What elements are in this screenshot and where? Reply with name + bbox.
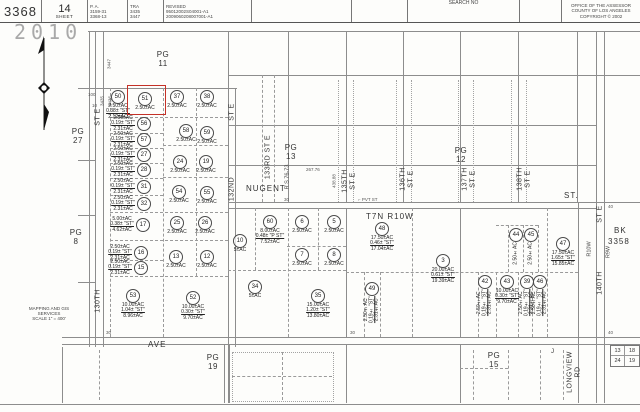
parcel-number-19[interactable]: 19 xyxy=(199,155,213,169)
map-dash-v-20 xyxy=(563,350,564,400)
parcel-number-58[interactable]: 58 xyxy=(179,124,193,138)
corner-13: 13 xyxy=(611,346,625,356)
parcel-60-acreage: 8.00±AC0.48± "P ST"7.52±AC xyxy=(256,229,284,245)
parcel-number-3[interactable]: 3 xyxy=(436,254,450,268)
vertical-label-140th-st-e-top: ST E xyxy=(596,205,604,222)
office-line-3: COPYRIGHT © 2002 xyxy=(580,14,623,19)
map-dash-v-5 xyxy=(288,208,289,337)
map-line-h-13 xyxy=(78,282,95,283)
parcel-43-acreage: 10.00±AC0.30± "ST"9.70±AC xyxy=(495,289,519,305)
parcel-number-34[interactable]: 34 xyxy=(248,280,262,294)
sheet-word: SHEET xyxy=(56,14,74,19)
pg-label-8: PG8 xyxy=(70,228,83,246)
parcel-6-acreage: 2.50±AC xyxy=(292,229,311,234)
parcel-number-43[interactable]: 43 xyxy=(500,275,514,289)
map-line-v-4 xyxy=(235,88,236,347)
label-nugent-st-2: ST. xyxy=(564,191,579,200)
label-pvt-st: ⌐ PVT ST xyxy=(358,197,378,202)
label-tick-100: 100 xyxy=(88,92,96,97)
parcel-number-59[interactable]: 59 xyxy=(200,126,214,140)
parcel-number-24[interactable]: 24 xyxy=(173,155,187,169)
map-dash-v-7 xyxy=(318,208,319,270)
blank-cell-3 xyxy=(520,0,562,22)
map-dot-v-4 xyxy=(458,80,459,202)
parcel-number-16[interactable]: 16 xyxy=(134,246,148,260)
parcel-46-acreage: 2.50±AC0.19± "ST"2.31±AC xyxy=(532,289,548,316)
pg-label-19: PG19 xyxy=(207,353,220,371)
vertical-label-135th-st-e: 135THST E xyxy=(342,169,357,193)
parcel-number-7[interactable]: 7 xyxy=(295,248,309,262)
parcel-number-54[interactable]: 54 xyxy=(172,185,186,199)
map-dash-v-10 xyxy=(380,272,381,337)
vertical-label-138th-st-e: 138THST E xyxy=(517,167,532,191)
map-dash-h-16 xyxy=(460,368,508,369)
map-line-v-0 xyxy=(89,31,90,347)
section-corner-box: 13 18 24 19 xyxy=(610,345,640,367)
pa-line-2: 3368-13 xyxy=(88,14,107,19)
vertical-label-140th-st-e-name: 140TH xyxy=(596,271,604,295)
parcel-number-5[interactable]: 5 xyxy=(327,215,341,229)
pg-label-27: PG27 xyxy=(72,127,85,145)
label-tick-30-rs: 30 xyxy=(284,197,289,202)
vertical-label-tra-3447: 3447 xyxy=(105,59,113,69)
map-line-h-10 xyxy=(78,88,95,89)
pg-label-11: PG11 xyxy=(157,50,170,68)
book-number: 3368 xyxy=(4,4,37,19)
parcel-number-27[interactable]: 27 xyxy=(137,148,151,162)
parcel-number-25[interactable]: 25 xyxy=(170,216,184,230)
map-line-v-2 xyxy=(103,31,104,347)
parcel-12-acreage: 2.50±AC xyxy=(197,264,216,269)
parcel-number-56[interactable]: 56 xyxy=(137,117,151,131)
map-dash-v-21 xyxy=(473,350,474,400)
north-arrow-icon xyxy=(30,34,56,134)
blank-cell-2 xyxy=(352,0,408,22)
parcel-number-8[interactable]: 8 xyxy=(327,248,341,262)
map-line-v-12 xyxy=(577,31,578,202)
parcel-number-39[interactable]: 39 xyxy=(520,275,534,289)
corner-19: 19 xyxy=(625,356,639,366)
parcel-number-17[interactable]: 17 xyxy=(136,218,150,232)
label-t7n-r10w: T7N R10W xyxy=(366,212,414,221)
parcel-26-acreage: 2.50±AC xyxy=(195,230,214,235)
parcel-number-44[interactable]: 44 xyxy=(509,228,523,242)
parcel-53-acreage: 10.00±AC1.04± "ST"8.96±AC xyxy=(121,303,145,319)
parcel-48-acreage: 17.50±AC0.46± "ST"17.04±AC xyxy=(370,236,394,252)
dotted-parcel-outline xyxy=(232,352,334,402)
parcel-42-acreage: 2.50±AC0.19± "ST"2.31±AC xyxy=(477,289,493,316)
map-dot-v-0 xyxy=(338,80,339,202)
map-dash-h-9 xyxy=(110,240,228,241)
map-line-v-16 xyxy=(224,344,225,403)
map-line-h-11 xyxy=(78,160,95,161)
label-dim-267: 267.76 xyxy=(306,167,320,172)
revised-line-2: 2009060208007001-A1 xyxy=(164,14,213,19)
map-line-h-12 xyxy=(78,215,95,216)
label-tick-10: 10 xyxy=(92,103,97,108)
map-line-h-9 xyxy=(0,404,640,405)
parcel-55-acreage: 2.50±AC xyxy=(197,200,216,205)
map-line-h-4 xyxy=(228,165,596,166)
sheet-number: 14 xyxy=(58,4,70,14)
vertical-label-133rd-st-e: 133RD ST E xyxy=(264,135,272,179)
map-line-h-1 xyxy=(95,88,237,89)
map-dot-v-2 xyxy=(396,80,397,202)
parcel-number-15[interactable]: 15 xyxy=(134,261,148,275)
parcel-number-10[interactable]: 10 xyxy=(233,234,247,248)
label-j-mark: J xyxy=(551,349,554,355)
assessor-map-page: { "header": { "book": "3368", "sheet_num… xyxy=(0,0,640,412)
map-dash-h-7 xyxy=(163,177,228,178)
map-line-h-7 xyxy=(62,337,640,338)
highlighted-parcel-box[interactable] xyxy=(127,85,166,115)
parcel-number-50[interactable]: 50 xyxy=(111,90,125,104)
parcel-44-acreage: 2.50±AC xyxy=(513,242,518,265)
parcel-number-52[interactable]: 52 xyxy=(186,291,200,305)
parcel-number-53[interactable]: 53 xyxy=(126,289,140,303)
vertical-label-130th-st-e-top: ST E xyxy=(94,108,102,125)
label-tick-40-a: 40 xyxy=(608,204,613,209)
map-dash-h-14 xyxy=(346,272,578,273)
map-dash-v-14 xyxy=(538,225,539,272)
search-no-label: SEARCH NO xyxy=(449,0,479,6)
parcel-52-acreage: 10.00±AC0.30± "ST"9.70±AC xyxy=(181,305,205,321)
map-line-h-0 xyxy=(88,31,640,32)
pg-label-12: PG12 xyxy=(455,146,468,164)
parcel-32-acreage: 2.50±AC0.19± "ST"2.31±AC xyxy=(111,196,135,212)
map-line-h-3 xyxy=(228,125,596,126)
parcel-35-acreage: 15.00±AC1.20± "ST"13.80±AC xyxy=(306,303,330,319)
vertical-label-tra-3435: 3435 xyxy=(98,96,106,106)
vertical-label-132nd-st-e-name: 132ND xyxy=(228,177,236,201)
map-dot-v-6 xyxy=(511,80,512,202)
parcel-17-acreage: 5.00±AC0.38± "ST"4.62±AC xyxy=(110,217,134,233)
parcel-number-35[interactable]: 35 xyxy=(311,289,325,303)
map-line-h-2 xyxy=(228,75,640,76)
parcel-number-46[interactable]: 46 xyxy=(533,275,547,289)
vertical-label-136th-st-e: 136THST E xyxy=(400,167,415,191)
map-line-v-19 xyxy=(460,344,461,403)
label-bk-label: BK xyxy=(614,226,627,235)
parcel-number-49[interactable]: 49 xyxy=(365,282,379,296)
parcel-number-31[interactable]: 31 xyxy=(137,180,151,194)
parcel-number-12[interactable]: 12 xyxy=(200,250,214,264)
map-dash-v-22 xyxy=(508,350,509,400)
tra-line-2: 3447 xyxy=(128,14,140,19)
parcel-25-acreage: 2.50±AC xyxy=(167,230,186,235)
parcel-number-13[interactable]: 13 xyxy=(169,250,183,264)
pa-cell: P. A. 3159-31 3368-13 xyxy=(88,0,128,22)
label-bk-number: 3358 xyxy=(608,237,630,246)
label-tick-30-a: 30 xyxy=(106,330,111,335)
map-line-v-21 xyxy=(62,347,63,403)
parcel-number-37[interactable]: 37 xyxy=(170,90,184,104)
parcel-number-38[interactable]: 38 xyxy=(200,90,214,104)
map-dash-h-13 xyxy=(287,246,346,247)
vertical-label-130th-st-e-name: 130TH xyxy=(94,289,102,313)
parcel-59-acreage: 2.50±AC xyxy=(197,140,216,145)
map-dash-v-3 xyxy=(262,75,263,202)
parcel-31-acreage: 2.50±AC0.19± "ST"2.31±AC xyxy=(111,179,135,195)
parcel-56-acreage: 2.50±AC0.19± "ST"2.31±AC xyxy=(111,116,135,132)
label-ave: AVE xyxy=(148,340,166,349)
label-tick-40-b: 40 xyxy=(608,330,613,335)
map-dash-h-6 xyxy=(163,145,228,146)
vertical-label-132nd-st-e-top: ST E xyxy=(228,103,236,120)
parcel-24-acreage: 2.50±AC xyxy=(170,169,189,174)
parcel-number-32[interactable]: 32 xyxy=(137,197,151,211)
blank-cell-1 xyxy=(252,0,352,22)
vertical-label-longview-rd: LONGVIEWRD xyxy=(567,351,582,393)
parcel-number-26[interactable]: 26 xyxy=(198,216,212,230)
title-block: 3368 14 SHEET P. A. 3159-31 3368-13 TRA … xyxy=(0,0,640,23)
parcel-number-60[interactable]: 60 xyxy=(263,215,277,229)
assessor-office-cell: OFFICE OF THE ASSESSOR COUNTY OF LOS ANG… xyxy=(562,0,640,22)
pg-label-15: PG15 xyxy=(488,351,501,369)
parcel-54-acreage: 2.50±AC xyxy=(169,199,188,204)
parcel-number-45[interactable]: 45 xyxy=(524,228,538,242)
parcel-13-acreage: 2.50±AC xyxy=(166,264,185,269)
parcel-58-acreage: 2.50±AC xyxy=(176,138,195,143)
map-dash-v-4 xyxy=(274,75,275,202)
parcel-19-acreage: 2.50±AC xyxy=(196,169,215,174)
year-stamp: 2010 xyxy=(14,20,82,44)
parcel-34-acreage: 5±AC xyxy=(249,294,261,299)
vertical-label-r10w: R10W xyxy=(586,241,594,256)
parcel-7-acreage: 2.50±AC xyxy=(292,262,311,267)
corner-24: 24 xyxy=(611,356,625,366)
parcel-number-42[interactable]: 42 xyxy=(478,275,492,289)
map-dash-h-15 xyxy=(496,225,538,226)
map-line-v-15 xyxy=(604,31,605,403)
map-dash-h-12 xyxy=(228,270,346,271)
parcel-3-acreage: 20.00±AC0.61± "ST"19.39±AC xyxy=(431,268,455,284)
parcel-49-acreage: 2.50±AC0.19± "ST"2.31±AC xyxy=(364,296,380,323)
parcel-number-47[interactable]: 47 xyxy=(556,237,570,251)
parcel-37-acreage: 2.50±AC xyxy=(167,104,186,109)
vertical-label-137th-st-e: 137THST E xyxy=(462,167,477,191)
label-tick-30-b: 30 xyxy=(350,330,355,335)
parcel-8-acreage: 2.50±AC xyxy=(324,262,343,267)
map-dash-v-23 xyxy=(540,350,541,400)
parcel-5-acreage: 2.50±AC xyxy=(324,229,343,234)
parcel-number-55[interactable]: 55 xyxy=(200,186,214,200)
map-line-v-17 xyxy=(229,344,230,403)
corner-18: 18 xyxy=(625,346,639,356)
sheet-cell: 14 SHEET xyxy=(42,0,88,22)
revised-cell: REVISED 95012002S04001-A1 20090602080070… xyxy=(164,0,252,22)
parcel-47-acreage: 17.50±AC1.65± "ST"15.85±AC xyxy=(551,251,575,267)
pg-label-13: PG13 xyxy=(285,143,298,161)
parcel-45-acreage: 2.50±AC xyxy=(528,242,533,265)
parcel-number-6[interactable]: 6 xyxy=(295,215,309,229)
parcel-number-57[interactable]: 57 xyxy=(137,133,151,147)
vertical-label-dim-438: 438.88 xyxy=(330,174,338,188)
map-dash-v-19 xyxy=(99,350,100,400)
search-no-cell: SEARCH NO xyxy=(408,0,520,22)
parcel-38-acreage: 2.50±AC xyxy=(197,104,216,109)
tra-cell: TRA 3435 3447 xyxy=(128,0,164,22)
map-line-v-13 xyxy=(578,202,579,347)
label-nugent-st: NUGENT xyxy=(246,184,286,193)
parcel-number-28[interactable]: 28 xyxy=(137,163,151,177)
map-line-v-18 xyxy=(346,344,347,403)
parcel-10-acreage: 5±AC xyxy=(234,248,246,253)
book-number-cell: 3368 xyxy=(0,0,42,22)
parcel-15-acreage: 2.50±AC0.19± "ST"2.31±AC xyxy=(108,260,132,276)
vertical-label-r9w: R9W xyxy=(605,246,613,258)
map-scale-note: MAPPING AND GISSERVICESSCALE 1" = 400' xyxy=(20,306,78,322)
parcel-28-acreage: 2.50±AC0.19± "ST"2.31±AC xyxy=(111,162,135,178)
parcel-number-48[interactable]: 48 xyxy=(375,222,389,236)
